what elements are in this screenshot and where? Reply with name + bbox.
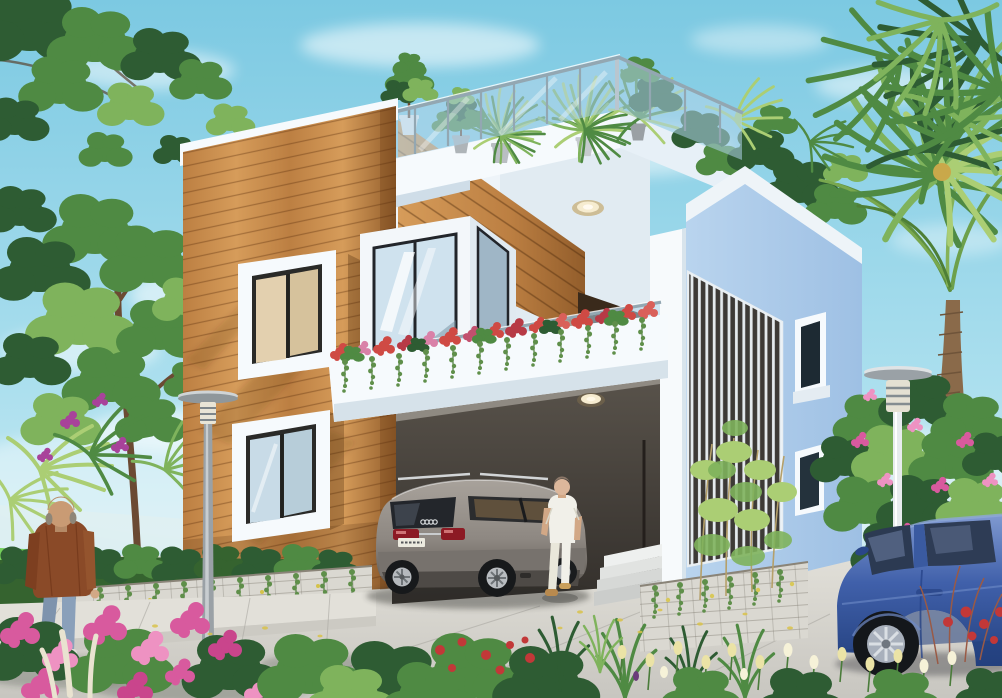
suv-wheel-left: [385, 560, 419, 594]
license-plate: [398, 538, 425, 547]
right-white-volume: [650, 166, 862, 608]
carport-ceiling-light: [577, 393, 605, 407]
side-window-upper: [793, 312, 830, 404]
suv-taillight-right: [441, 528, 465, 540]
architectural-rendering: [0, 0, 1002, 698]
entry-pillar-edge: [682, 228, 686, 602]
lower-left-window: [232, 410, 344, 542]
balcony-ceiling-light: [572, 200, 604, 216]
suv-wheel-right: [478, 559, 516, 597]
